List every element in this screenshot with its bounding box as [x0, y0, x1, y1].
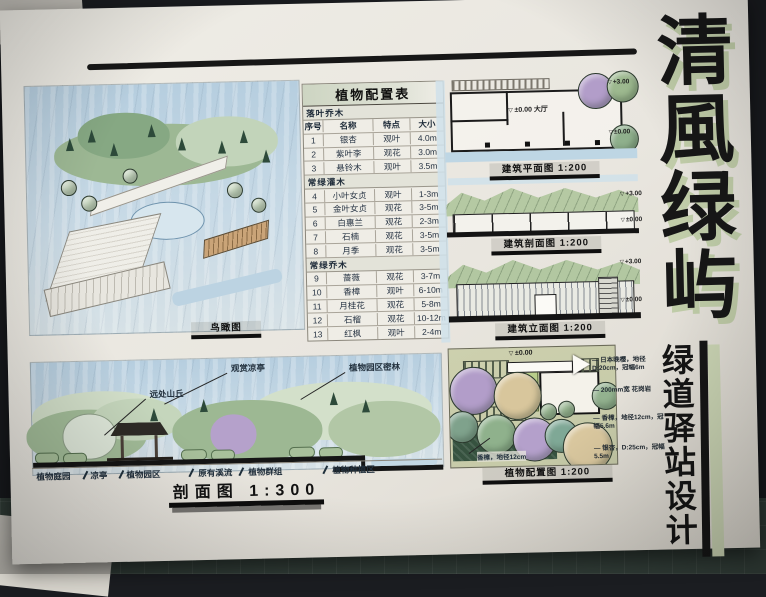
col-header: 名称: [322, 119, 373, 132]
zone-label: 植物种植区: [332, 463, 375, 476]
tree-mass: [328, 400, 441, 459]
pine-tree-icon: [262, 149, 270, 162]
pine-tree-icon: [330, 392, 338, 405]
dimension-tick: [188, 468, 194, 477]
pavilion-roof: [110, 422, 168, 436]
plant-note: 200mm宽 花岗岩: [593, 386, 665, 396]
column: [595, 140, 600, 145]
plant-note: 银杏，D:25cm，冠幅5.5m: [594, 444, 666, 462]
pine-tree-icon: [150, 408, 158, 421]
planting-notes: 日本晚樱，地径D:20cm，冠幅6m 200mm宽 花岗岩 香樟，地径12cm，…: [592, 356, 667, 470]
dimension-tick: [322, 465, 328, 474]
birdseye-label-plate: 鸟瞰图: [191, 321, 261, 340]
site-section-panel: 观赏凉亭 远处山丘 植物园区密林: [30, 353, 444, 476]
birdseye-label: 鸟瞰图: [210, 322, 242, 334]
plant-note: 日本晚樱，地径D:20cm，冠幅6m: [592, 356, 664, 374]
callout: 观赏凉亭: [231, 362, 265, 375]
tree-circle: [61, 180, 77, 196]
building-section-label: 建筑剖面图 1:200: [503, 237, 589, 250]
building-elevation-label-plate: 建筑立面图 1:200: [495, 321, 605, 341]
birdseye-panel: [24, 80, 306, 336]
stair-tower: [598, 277, 619, 315]
main-title: 清風绿屿: [646, 10, 733, 346]
building-section-panel: +3.00 ±0.00 建筑剖面图 1:200: [446, 182, 640, 256]
stream: [171, 268, 283, 307]
elevation-mark: ±0.00: [620, 296, 642, 303]
pine-tree-icon: [110, 143, 118, 156]
top-rule-bar: [87, 48, 637, 70]
site-section-label: 剖面图 1:300: [173, 481, 321, 501]
tree-circle: [540, 403, 557, 420]
design-board-paper: 鸟瞰图 植物配置表 落叶乔木 序号 名称 特点 大小 1 银杏 观叶 4.0m …: [0, 0, 760, 564]
plant-table: 植物配置表 落叶乔木 序号 名称 特点 大小 1 银杏 观叶 4.0m 2 紫叶…: [302, 81, 450, 342]
building-elevation-panel: +3.00 ±0.00 建筑立面图 1:200: [448, 254, 642, 342]
pine-tree-icon: [147, 124, 155, 137]
tree-circle: [558, 401, 575, 418]
tree-circle: [606, 70, 639, 103]
col-header: 特点: [373, 119, 410, 132]
planting-plan-label-plate: 植物配置图 1:200: [482, 465, 612, 485]
callout: 植物园区密林: [349, 361, 400, 374]
pavilion-post: [120, 436, 124, 460]
sub-title: 绿道驿站设计: [658, 343, 697, 558]
photo-of-design-board: { "title_block": { "main": "清風绿屿", "sub"…: [0, 0, 766, 574]
tree-circle: [493, 371, 542, 420]
planting-plan-label: 植物配置图 1:200: [505, 466, 591, 479]
col-header: 序号: [303, 121, 322, 133]
pine-tree-icon: [66, 138, 74, 151]
dimension-tick: [82, 471, 88, 480]
floor-plan-panel: ±0.00 大厅 +3.00 ±0.00 建筑平面图 1:200: [443, 72, 637, 182]
pine-tree-icon: [362, 399, 370, 412]
building-elevation-label: 建筑立面图 1:200: [507, 322, 593, 335]
building-section-label-plate: 建筑剖面图 1:200: [491, 236, 601, 256]
pine-tree-icon: [88, 129, 96, 142]
elevation-mark: +3.00: [608, 78, 630, 85]
title-highlight-stroke: [708, 344, 725, 556]
pine-tree-icon: [200, 399, 208, 412]
plant-note: 香樟，地径12cm，冠幅5.6m: [593, 414, 665, 432]
arrow-head-icon: [573, 354, 590, 374]
floor-plan-label-plate: 建筑平面图 1:200: [489, 161, 599, 181]
tree-circle: [227, 182, 243, 198]
site-section-label-plate: 剖面图 1:300: [168, 475, 324, 508]
elevation-mark: +3.00: [620, 190, 642, 197]
column: [565, 141, 570, 146]
elevation-mark: +3.00: [620, 258, 642, 265]
zone-label: 凉亭: [90, 469, 107, 481]
pine-tree-icon: [178, 137, 186, 150]
floor-plan-label: 建筑平面图 1:200: [502, 162, 588, 175]
zone-label: 植物园区: [126, 468, 160, 481]
pine-tree-icon: [218, 140, 226, 153]
table-row: 13 红枫 观叶 2-4m: [308, 325, 448, 341]
callout: 远处山丘: [149, 387, 183, 400]
column: [525, 142, 530, 147]
tree-circle: [251, 198, 266, 213]
column: [485, 142, 490, 147]
plant-table-title: 植物配置表: [303, 82, 443, 107]
roof-hatch: [452, 78, 550, 91]
zone-label: 植物庭园: [36, 470, 70, 483]
dimension-tick: [238, 467, 244, 476]
plan-annotation: ±0.00 大厅: [508, 104, 548, 115]
plan-elevation-mark: ±0.00: [509, 350, 533, 358]
dimension-tick: [118, 470, 124, 479]
elevation-mark: ±0.00: [621, 216, 643, 223]
pine-tree-icon: [240, 130, 248, 143]
plan-callout: 香樟，地径12cm: [477, 451, 526, 462]
elevation-mark: ±0.00: [609, 128, 631, 135]
pavilion-post: [154, 435, 158, 459]
pergola: [203, 220, 269, 259]
